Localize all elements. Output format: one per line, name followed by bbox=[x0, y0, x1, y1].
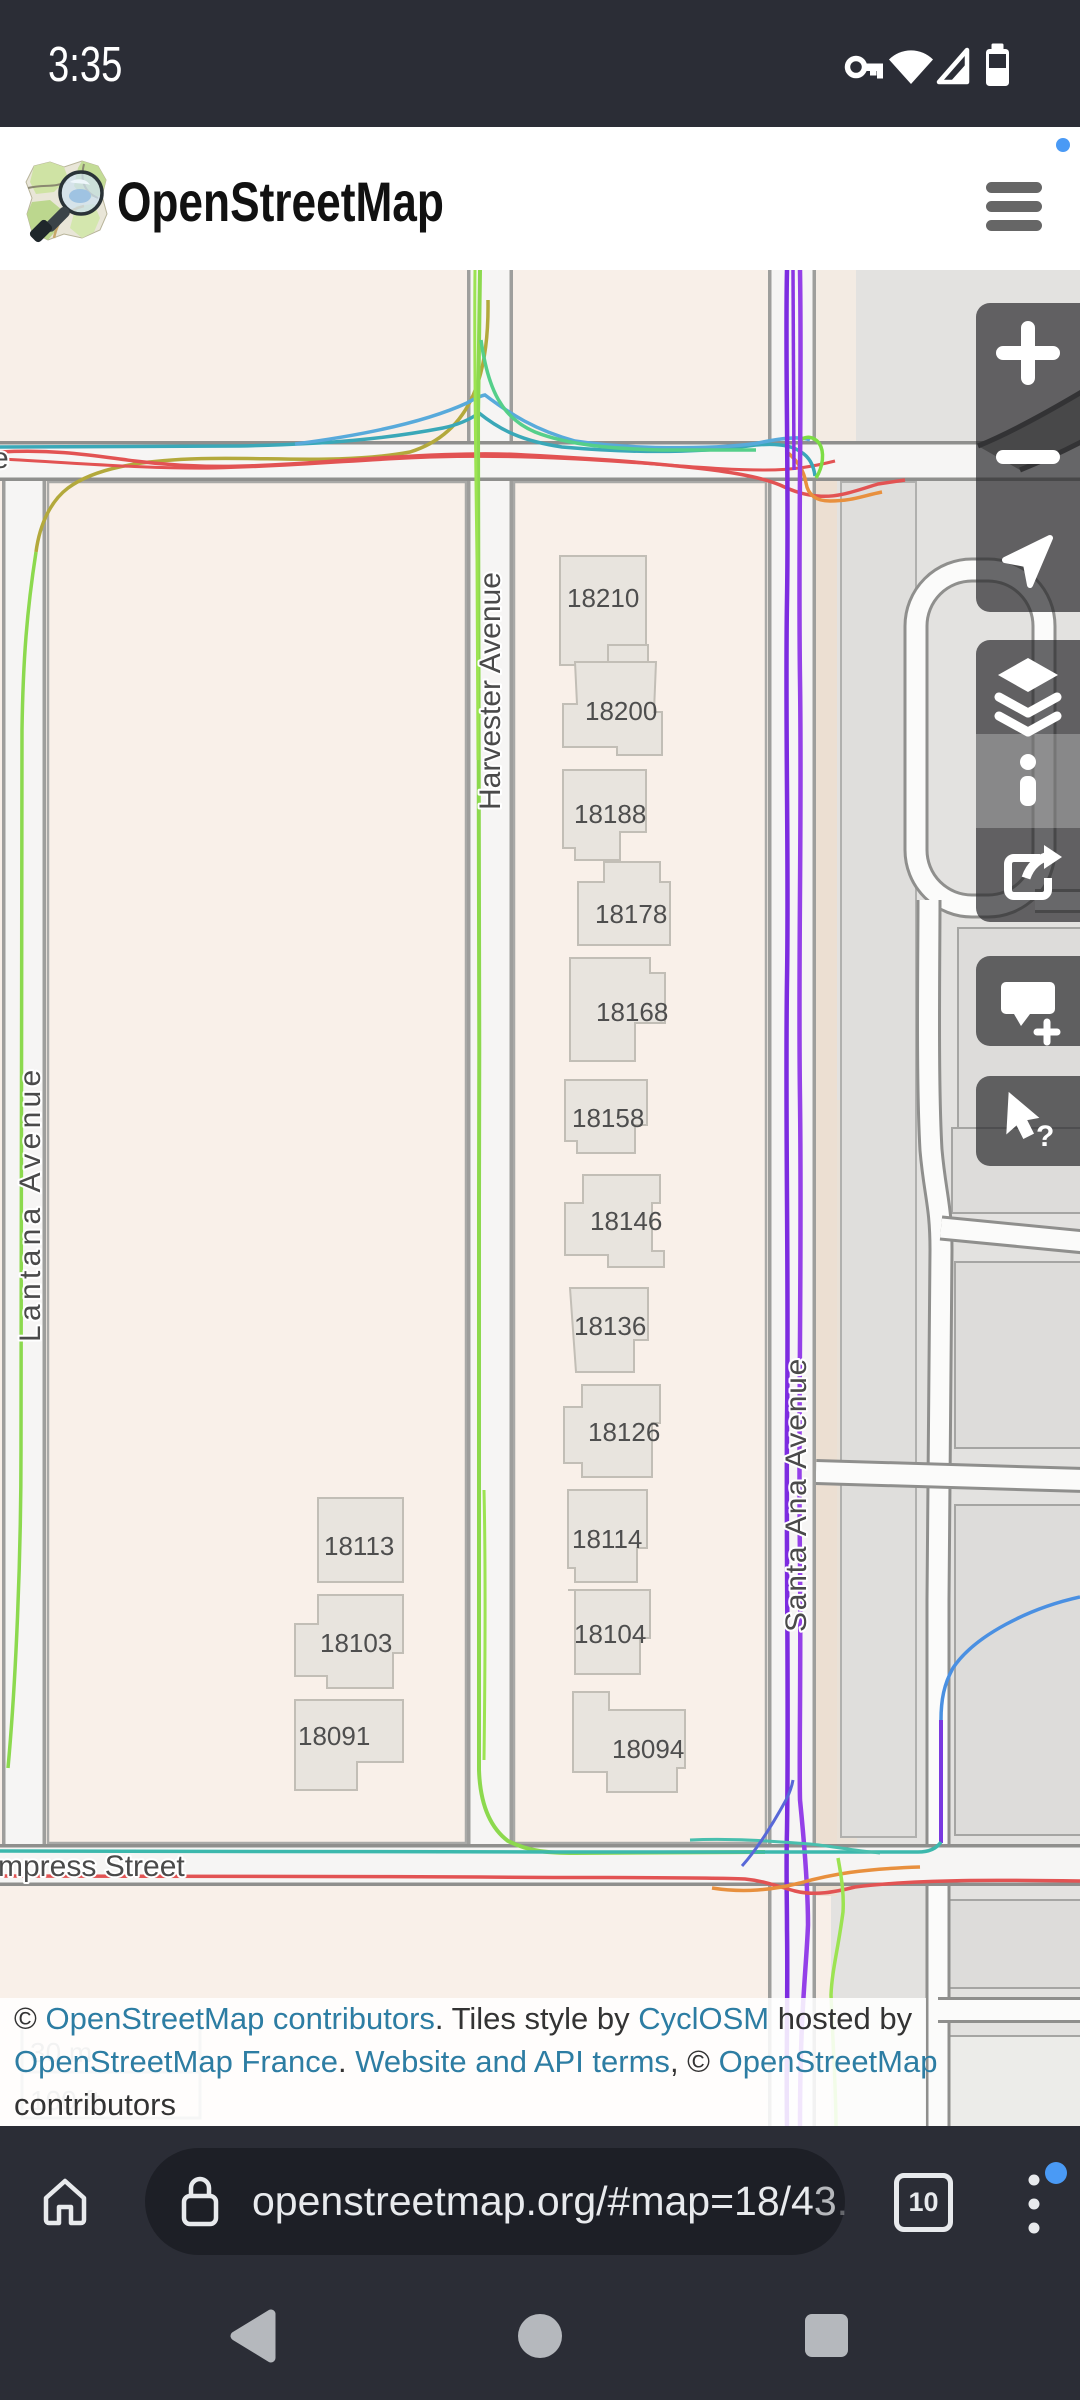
svg-text:18091: 18091 bbox=[298, 1721, 370, 1751]
svg-text:18158: 18158 bbox=[572, 1103, 644, 1133]
svg-text:18210: 18210 bbox=[567, 583, 639, 613]
svg-text:18126: 18126 bbox=[588, 1417, 660, 1447]
svg-text:18103: 18103 bbox=[320, 1628, 392, 1658]
svg-text:18146: 18146 bbox=[590, 1206, 662, 1236]
svg-text:e: e bbox=[0, 442, 9, 475]
svg-text:18168: 18168 bbox=[596, 997, 668, 1027]
svg-text:18104: 18104 bbox=[574, 1619, 646, 1649]
svg-text:Harvester Avenue: Harvester Avenue bbox=[474, 572, 507, 810]
svg-text:18094: 18094 bbox=[612, 1734, 684, 1764]
svg-text:18178: 18178 bbox=[595, 899, 667, 929]
svg-text:18136: 18136 bbox=[574, 1311, 646, 1341]
svg-text:18188: 18188 bbox=[574, 799, 646, 829]
svg-text:?: ? bbox=[1036, 1120, 1054, 1153]
svg-text:Empress Street: Empress Street bbox=[0, 1850, 185, 1883]
svg-text:18113: 18113 bbox=[324, 1531, 394, 1561]
svg-text:18200: 18200 bbox=[585, 696, 657, 726]
svg-text:18114: 18114 bbox=[572, 1524, 642, 1554]
svg-text:Santa Ana Avenue: Santa Ana Avenue bbox=[780, 1357, 813, 1632]
svg-text:Lantana Avenue: Lantana Avenue bbox=[14, 1065, 47, 1342]
